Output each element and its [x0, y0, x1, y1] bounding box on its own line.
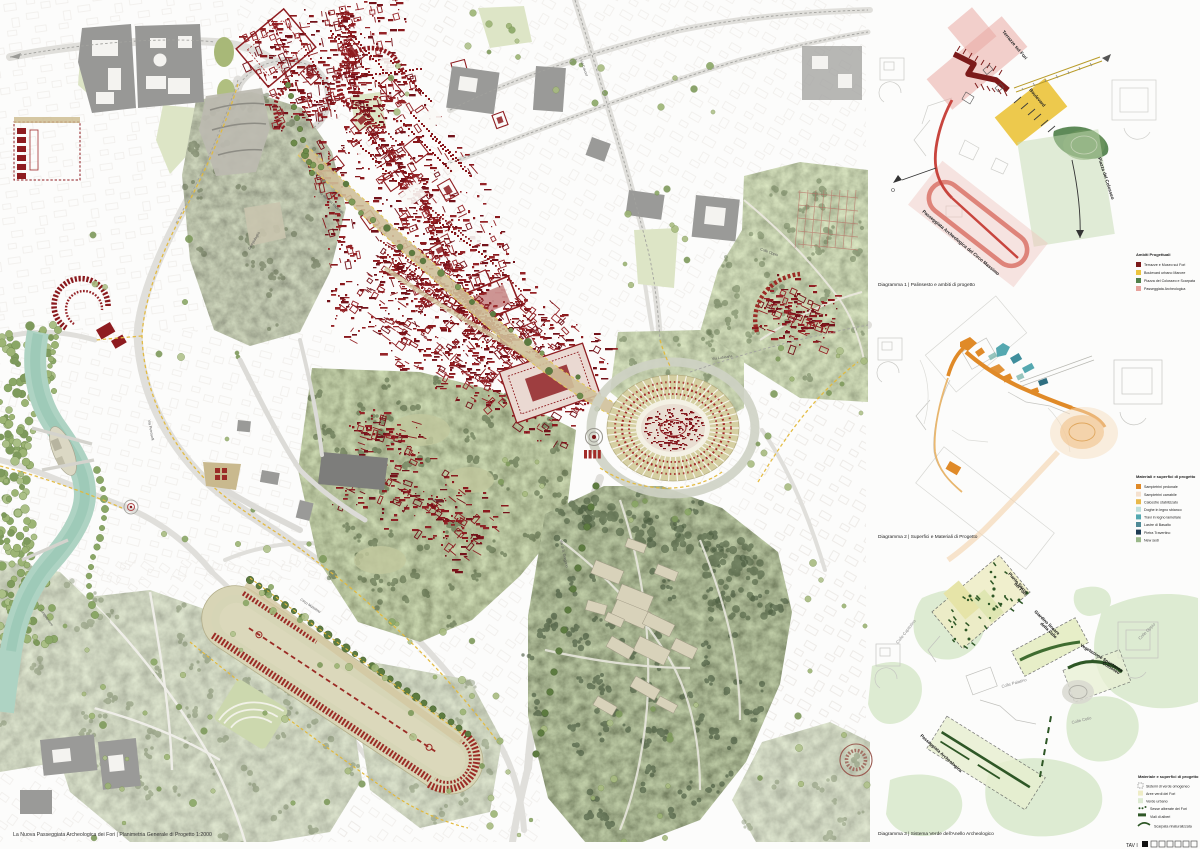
svg-text:Materiale e superfici di proge: Materiale e superfici di progetto	[1138, 774, 1199, 779]
svg-text:Lastre di Basalto: Lastre di Basalto	[1144, 523, 1171, 527]
svg-text:Doghe in legno sbianco: Doghe in legno sbianco	[1144, 508, 1182, 512]
svg-text:Diagramma 1 | Palinsesto e amb: Diagramma 1 | Palinsesto e ambiti di pro…	[878, 282, 975, 288]
svg-text:New sedi: New sedi	[1144, 538, 1159, 542]
svg-text:Diagramma 3 | Sistema Verde de: Diagramma 3 | Sistema Verde dell'Anello …	[878, 831, 994, 837]
svg-text:Terrazze e Museo sui Fori: Terrazze e Museo sui Fori	[1144, 263, 1186, 267]
svg-text:Materiali e superfici di proge: Materiali e superfici di progetto	[1136, 474, 1196, 479]
svg-text:Travi in legno lamellare: Travi in legno lamellare	[1144, 516, 1181, 520]
svg-text:Passeggiata Archeologica: Passeggiata Archeologica	[1144, 287, 1185, 291]
svg-text:Scarpata rinaturalizzata: Scarpata rinaturalizzata	[1154, 824, 1192, 828]
svg-text:Piazza del Colosseo e Scarpata: Piazza del Colosseo e Scarpata	[1144, 279, 1195, 283]
svg-text:Calcestre stabilizzato: Calcestre stabilizzato	[1144, 500, 1178, 504]
svg-text:Pietra Travertino: Pietra Travertino	[1144, 531, 1170, 535]
svg-text:Ambiti Progettuali: Ambiti Progettuali	[1136, 252, 1170, 257]
svg-text:Verde urbano: Verde urbano	[1146, 800, 1168, 804]
svg-text:La Nuova Passeggiata Archeolog: La Nuova Passeggiata Archeologica dei Fo…	[13, 832, 212, 838]
svg-text:Sampietrini carrabile: Sampietrini carrabile	[1144, 493, 1177, 497]
svg-text:Sistemi di verde omogeneo: Sistemi di verde omogeneo	[1146, 784, 1190, 788]
svg-text:Viali di alberi: Viali di alberi	[1150, 815, 1171, 819]
svg-text:Sampietrini pedonale: Sampietrini pedonale	[1144, 485, 1178, 489]
svg-text:Boulevard urbano Marcee: Boulevard urbano Marcee	[1144, 271, 1185, 275]
svg-text:Aree verdi dei Fori: Aree verdi dei Fori	[1146, 792, 1176, 796]
svg-text:TAV I: TAV I	[1126, 843, 1138, 849]
svg-text:Sesse alberate dei Fori: Sesse alberate dei Fori	[1150, 807, 1187, 811]
svg-text:Diagramma 2 | Superfici e Mate: Diagramma 2 | Superfici e Materiali di P…	[878, 534, 978, 540]
